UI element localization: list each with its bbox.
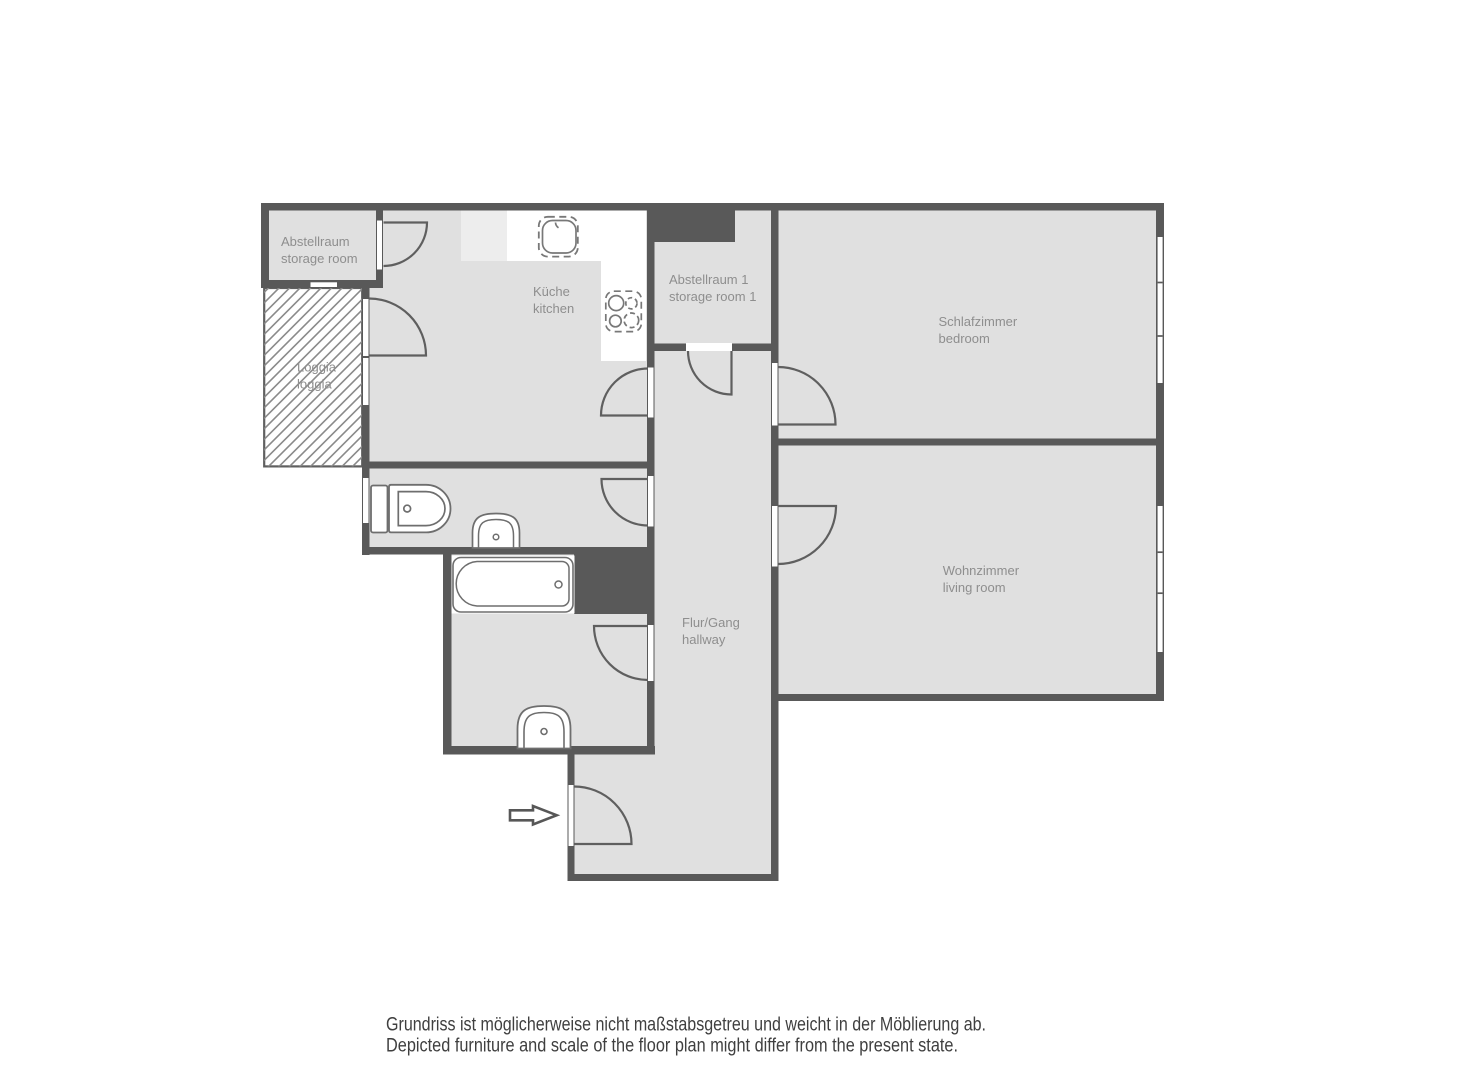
svg-text:Abstellraum 1: Abstellraum 1	[669, 272, 748, 287]
svg-text:loggia: loggia	[297, 377, 332, 392]
svg-text:Depicted furniture and scale o: Depicted furniture and scale of the floo…	[386, 1036, 958, 1057]
svg-text:bedroom: bedroom	[939, 331, 990, 346]
svg-text:Loggia: Loggia	[297, 360, 337, 375]
svg-text:hallway: hallway	[682, 632, 726, 647]
svg-text:storage room: storage room	[281, 251, 358, 266]
svg-text:Küche: Küche	[533, 284, 570, 299]
svg-text:Wohnzimmer: Wohnzimmer	[943, 563, 1020, 578]
svg-text:Schlafzimmer: Schlafzimmer	[939, 314, 1018, 329]
svg-text:storage room 1: storage room 1	[669, 289, 756, 304]
svg-text:kitchen: kitchen	[533, 301, 574, 316]
svg-text:Flur/Gang: Flur/Gang	[682, 615, 740, 630]
svg-text:Abstellraum: Abstellraum	[281, 234, 350, 249]
svg-text:living room: living room	[943, 580, 1006, 595]
svg-text:Grundriss ist möglicherweise n: Grundriss ist möglicherweise nicht maßst…	[386, 1015, 986, 1036]
